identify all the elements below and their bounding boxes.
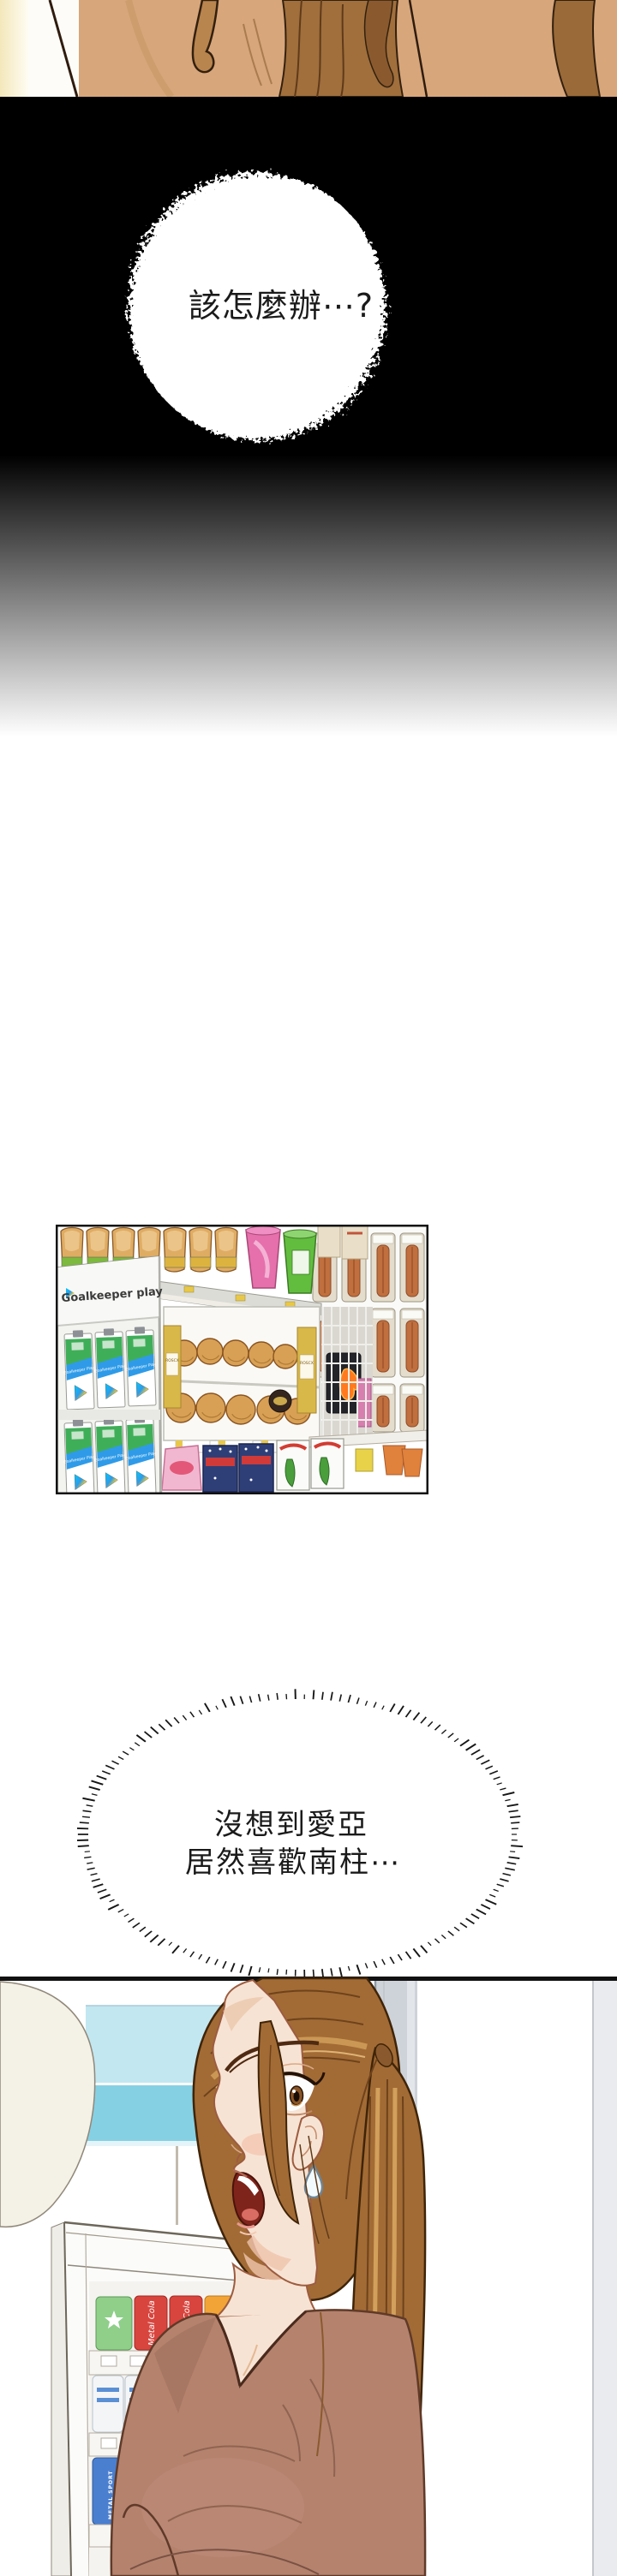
hatch-tick — [382, 1959, 385, 1965]
hatch-tick — [382, 1706, 384, 1710]
hatch-tick — [466, 1744, 476, 1750]
gift-card: Goalkeeper Play — [93, 1417, 128, 1494]
store-scene-panel: ROSCX ROSCX — [56, 1225, 428, 1494]
wire-rack — [321, 1307, 373, 1440]
hatch-tick — [390, 1957, 394, 1964]
hatch-tick — [169, 1942, 172, 1946]
hatch-tick — [428, 1721, 432, 1726]
hatch-tick — [339, 1695, 341, 1702]
sausage-pack — [371, 1384, 395, 1432]
hatch-tick — [448, 1931, 454, 1935]
pastry-case: ROSCX ROSCX — [164, 1307, 320, 1452]
sausage-pack — [371, 1233, 395, 1302]
bubble1-text: 該怎麼辦⋯? — [189, 287, 374, 325]
hatch-tick — [259, 1967, 260, 1972]
hatch-tick — [216, 1706, 218, 1709]
hatch-tick — [314, 1970, 314, 1977]
hatch-tick — [277, 1693, 278, 1700]
bread-roll — [249, 1342, 274, 1368]
bubble2-line1: 沒想到愛亞 — [214, 1808, 368, 1842]
hatch-tick — [348, 1695, 350, 1702]
hatch-tick — [348, 1966, 350, 1971]
hatch-tick — [505, 1799, 510, 1800]
hatch-tick — [150, 1935, 158, 1941]
gift-card-display: Goalkeeper play Goalkeeper PlayGoalkeepe… — [57, 1256, 164, 1494]
hatch-tick — [174, 1718, 179, 1724]
hatch-tick — [222, 1699, 226, 1708]
bread-bag — [215, 1228, 237, 1273]
hatch-tick — [84, 1857, 91, 1857]
hatch-tick — [223, 1961, 226, 1968]
hatch-tick — [87, 1868, 95, 1869]
hatch-tick — [356, 1965, 360, 1974]
hatch-tick — [110, 1899, 115, 1902]
hatch-tick — [510, 1816, 520, 1817]
hatch-tick — [183, 1948, 187, 1953]
green-cup — [284, 1230, 316, 1293]
hatch-tick — [460, 1923, 467, 1927]
hatch-tick — [331, 1968, 332, 1976]
bread-roll — [196, 1393, 225, 1422]
hatch-tick — [507, 1863, 517, 1864]
hatch-tick — [471, 1914, 479, 1918]
hatch-tick — [421, 1946, 428, 1953]
top-art-panel — [0, 0, 617, 97]
gift-card: Goalkeeper Play — [123, 1327, 159, 1406]
hatch-tick — [268, 1968, 269, 1972]
hatch-tick — [509, 1810, 518, 1812]
hatch-tick — [489, 1771, 498, 1774]
hatch-tick — [466, 1918, 475, 1923]
hatch-tick — [374, 1961, 377, 1968]
pink-cup — [246, 1226, 280, 1288]
hatch-tick — [322, 1692, 323, 1700]
wall-strip — [0, 0, 29, 97]
hatch-tick — [454, 1927, 459, 1931]
hatch-tick — [190, 1952, 195, 1957]
hatch-tick — [183, 1715, 186, 1720]
gift-card: Goalkeeper Play — [62, 1419, 97, 1494]
hatch-tick — [92, 1794, 98, 1796]
hatch-tick — [481, 1905, 490, 1909]
hatch-tick — [434, 1939, 439, 1943]
gift-card: Goalkeeper Play — [123, 1416, 159, 1494]
hatch-tick — [277, 1969, 278, 1975]
hatch-tick — [481, 1760, 489, 1764]
hatch-tick — [500, 1879, 508, 1881]
hatch-tick — [500, 1788, 506, 1790]
hatch-tick — [102, 1771, 111, 1774]
hatch-tick — [145, 1931, 152, 1937]
hatch-tick — [454, 1738, 458, 1742]
speech-bubble-1: 該怎麼辦⋯? — [86, 137, 428, 480]
hatch-tick — [231, 1963, 235, 1971]
character-panel: Metal Cola Metal Cola Méta — [0, 1977, 617, 2576]
hatch-tick — [421, 1717, 426, 1723]
hatch-tick — [331, 1692, 332, 1701]
hatch-tick — [108, 1905, 119, 1910]
hatch-tick — [494, 1777, 500, 1780]
hatch-tick — [231, 1696, 234, 1706]
hatch-tick — [78, 1846, 89, 1846]
hatch-tick — [118, 1909, 123, 1911]
bread-roll — [197, 1339, 223, 1364]
hatch-tick — [205, 1703, 210, 1712]
sausage-pack — [400, 1309, 424, 1377]
hatch-tick — [140, 1927, 146, 1931]
hatch-tick — [87, 1805, 93, 1806]
soda-can-white — [93, 2376, 123, 2432]
hatch-tick — [502, 1792, 514, 1795]
hatch-tick — [511, 1822, 519, 1823]
hatch-tick — [91, 1874, 98, 1875]
hatch-tick — [259, 1694, 261, 1702]
hatch-tick — [85, 1851, 90, 1852]
hatch-tick — [124, 1914, 129, 1917]
price-tag — [184, 1286, 194, 1292]
hatch-tick — [505, 1868, 515, 1869]
bread-roll — [223, 1340, 249, 1366]
bread-bag — [164, 1228, 186, 1273]
hatch-tick — [145, 1732, 153, 1738]
bread-bag — [189, 1228, 212, 1273]
wall-corner-line — [176, 2146, 178, 2225]
hatch-tick — [413, 1948, 420, 1957]
hatch-tick — [249, 1966, 251, 1976]
hatch-tick — [476, 1756, 484, 1760]
hatch-tick — [93, 1884, 104, 1887]
speech-bubble-2: 沒想到愛亞 居然喜歡南柱⋯ — [77, 1687, 523, 1983]
sausage-pack — [400, 1384, 424, 1432]
svg-text:ROSCX: ROSCX — [300, 1361, 314, 1366]
hatch-tick — [165, 1720, 171, 1726]
hatch-tick — [365, 1701, 367, 1706]
hatch-tick — [356, 1698, 359, 1704]
svg-text:Metal Cola: Metal Cola — [147, 2300, 157, 2346]
hatch-tick — [91, 1780, 103, 1784]
bread-roll — [273, 1345, 297, 1368]
hatch-tick — [240, 1696, 243, 1704]
hatch-tick — [129, 1918, 135, 1922]
hatch-tick — [428, 1942, 431, 1946]
hatch-tick — [502, 1874, 510, 1875]
hatch-tick — [123, 1751, 129, 1755]
hatch-tick — [136, 1735, 146, 1742]
hatch-tick — [374, 1702, 376, 1708]
snack-bags — [162, 1439, 344, 1492]
hatch-tick — [97, 1776, 107, 1780]
hatch-tick — [268, 1695, 269, 1701]
hatch-tick — [80, 1822, 89, 1823]
hatch-tick — [151, 1727, 159, 1734]
hatch-tick — [489, 1894, 495, 1897]
hatch-tick — [406, 1710, 411, 1717]
hatch-tick — [172, 1946, 179, 1953]
hatch-tick — [497, 1783, 502, 1785]
hatch-tick — [92, 1879, 100, 1881]
hatch-tick — [398, 1954, 402, 1960]
gift-card: Goalkeeper Play — [93, 1328, 128, 1408]
hatch-tick — [413, 1713, 419, 1720]
hatch-tick — [339, 1967, 342, 1977]
hatch-tick — [118, 1756, 123, 1759]
hatch-tick — [133, 1923, 140, 1928]
hatch-tick — [398, 1706, 404, 1714]
hatch-tick — [158, 1939, 165, 1946]
bread-roll — [226, 1395, 255, 1424]
hatch-tick — [83, 1810, 92, 1811]
hatch-tick — [485, 1766, 492, 1769]
hatch-tick — [406, 1952, 411, 1959]
hatch-tick — [390, 1704, 395, 1713]
hatch-tick — [509, 1857, 520, 1858]
webtoon-page: 該怎麼辦⋯? — [0, 0, 617, 2576]
gift-card: Goalkeeper Play — [62, 1330, 97, 1410]
hatch-tick — [507, 1804, 518, 1806]
hatch-tick — [129, 1748, 134, 1750]
hatch-tick — [485, 1899, 496, 1905]
hatch-tick — [448, 1733, 453, 1738]
hatch-tick — [497, 1884, 504, 1887]
hatch-tick — [494, 1889, 499, 1891]
hatch-tick — [249, 1696, 251, 1703]
hatch-tick — [105, 1765, 114, 1769]
hatch-tick — [82, 1798, 94, 1801]
hatch-tick — [476, 1909, 486, 1914]
sausage-pack — [400, 1233, 424, 1302]
wall-edge-strip — [593, 1977, 617, 2576]
hatch-tick — [240, 1965, 243, 1972]
hatch-tick — [100, 1894, 111, 1899]
tongue — [242, 2209, 259, 2221]
hatch-tick — [365, 1963, 367, 1968]
hatch-tick — [206, 1957, 209, 1963]
shelf-price-tag — [101, 2356, 117, 2366]
hatch-tick — [159, 1724, 165, 1730]
hatch-tick — [441, 1935, 446, 1938]
hatch-tick — [111, 1761, 118, 1764]
hatch-tick — [510, 1851, 515, 1852]
sausage-pack — [371, 1309, 395, 1377]
hatch-tick — [434, 1725, 440, 1730]
hatch-tick — [87, 1863, 93, 1863]
hatch-tick — [89, 1786, 100, 1790]
hatch-tick — [511, 1846, 523, 1846]
hatch-tick — [215, 1959, 219, 1965]
hatch-tick — [190, 1712, 195, 1717]
bubble2-line2: 居然喜歡南柱⋯ — [185, 1846, 401, 1880]
svg-text:ROSCX: ROSCX — [165, 1358, 179, 1363]
hatch-tick — [460, 1740, 469, 1746]
hatch-tick — [199, 1954, 202, 1959]
hatch-tick — [135, 1743, 140, 1746]
hatch-tick — [314, 1690, 314, 1699]
hatch-tick — [471, 1750, 480, 1755]
hatch-tick — [82, 1816, 90, 1817]
hatch-tick — [441, 1730, 446, 1734]
hatch-tick — [199, 1710, 201, 1714]
hatch-tick — [98, 1889, 106, 1893]
